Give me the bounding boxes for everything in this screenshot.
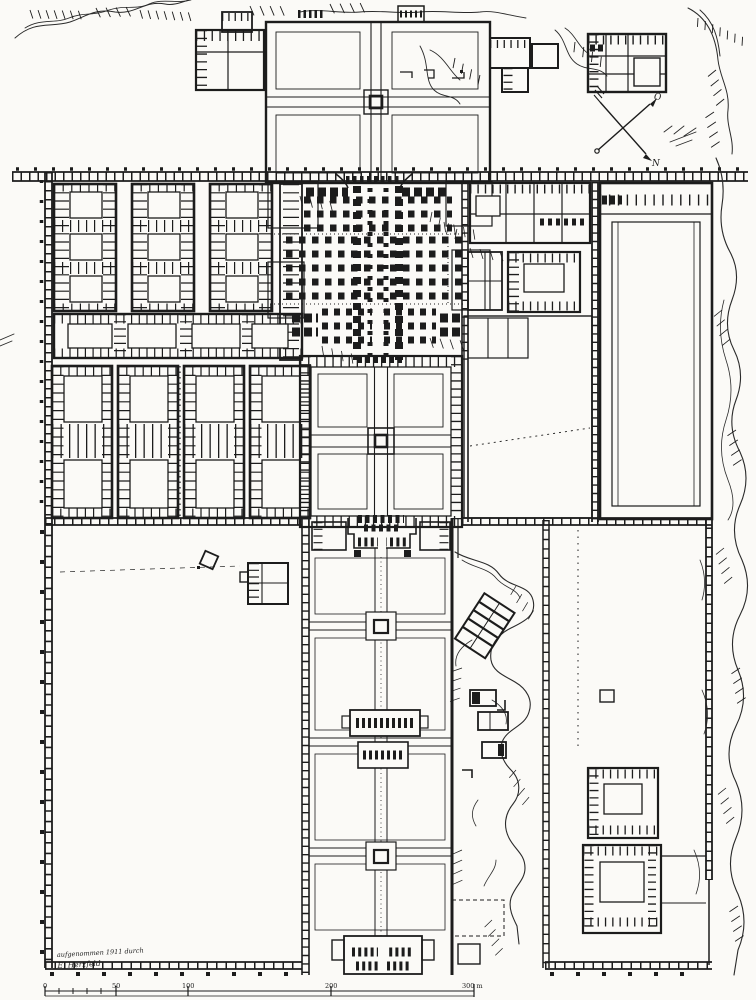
residential-grid-south [52,366,310,518]
scale-label-0: 0 [43,982,47,990]
scale-label-50: 50 [112,982,120,990]
annex-northwest-building [196,12,264,90]
west-outer-wall [42,172,53,524]
compass-north-arrowhead [643,154,652,161]
signature-line-1: aufgenommen 1911 durch [57,946,144,959]
compass-north-label: N [651,159,661,169]
compass-feather [594,86,604,102]
enclosure-north-wall [12,169,748,181]
southwest-enclosure [42,518,302,974]
court-pavilion [364,90,388,114]
great-court [300,356,462,528]
river-bank-east [694,158,748,975]
ruin-outline-dashed [452,900,504,936]
court-garden [311,367,451,516]
esplanade-south-gate [332,936,434,974]
residential-band-building [54,314,302,358]
scale-bar: 0 50 100 200 300 m [43,982,483,997]
scale-label-300m: 300 m [462,982,483,990]
axis-node [366,842,396,870]
margin-marks-west [0,334,14,346]
scale-label-100: 100 [182,982,194,990]
tilted-stair-building [455,593,515,658]
scale-label-200: 200 [325,982,337,990]
southeast-house-1 [588,768,658,838]
north-court [266,22,490,188]
wadi-ruins [462,690,508,778]
site-plan-drawing: N O [0,0,756,1000]
compass-east-label: O [654,93,662,103]
compass-rose: N O [594,86,696,169]
plan-sheet: N O [0,0,756,1000]
east-enclosure [600,183,712,519]
annex-northeast-small [490,38,558,92]
stream-wadi [447,552,536,964]
shrub-sketch [664,126,696,146]
annex-northeast-building [588,34,666,92]
tilted-kiosk [200,551,218,569]
east-quarter [441,182,598,522]
axis-node [366,612,396,640]
esplanade-middle-pavilion [342,710,428,768]
southeast-house-2 [583,845,661,933]
esplanade-garden [302,518,458,975]
